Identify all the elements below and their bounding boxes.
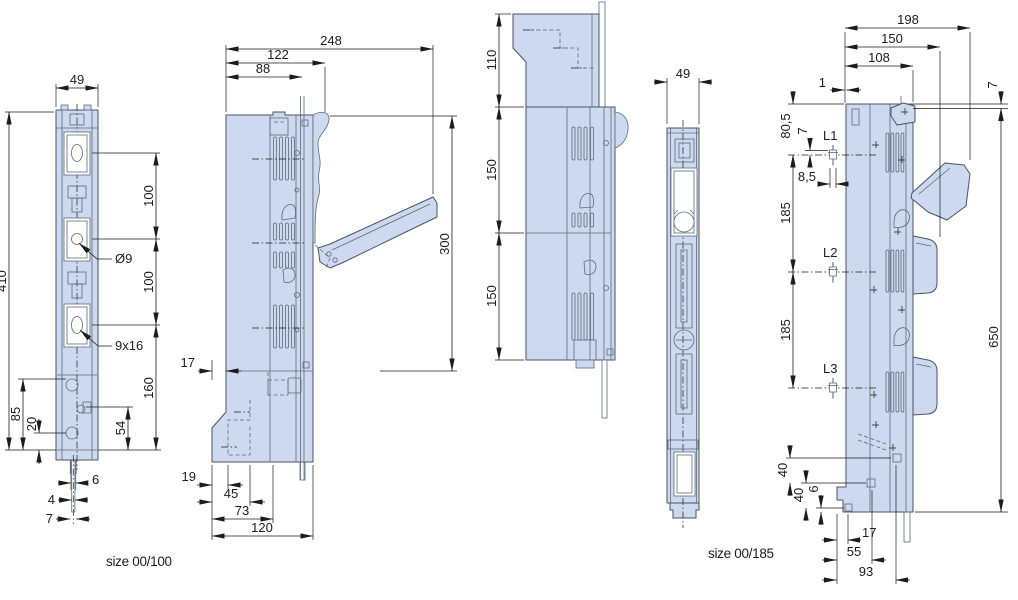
dim-pin-7: 7	[46, 511, 90, 526]
terminal-label-l3: L3	[823, 361, 837, 376]
dim-108: 108	[845, 50, 913, 102]
dim-label: 49	[676, 66, 690, 81]
dim-label: 650	[986, 326, 1001, 348]
dim-label: 185	[778, 202, 793, 224]
technical-drawing-page: 49 410 100 100 160 Ø9	[0, 0, 1018, 600]
top-contact	[891, 103, 915, 125]
dim-label: 93	[859, 564, 873, 579]
terminal-label-l2: L2	[823, 245, 837, 260]
dim-label: 88	[256, 61, 270, 76]
dim-label: 17	[181, 355, 195, 370]
view-side-size-00-100: 248 122 88 300 17 19	[181, 33, 457, 540]
dim-label: 49	[70, 72, 84, 87]
dim-19: 19	[182, 465, 243, 540]
dim-pitch-100-upper: 100	[92, 153, 160, 239]
dim-150-lower: 150	[484, 233, 524, 360]
dim-1: 1	[819, 75, 861, 90]
lever	[911, 163, 970, 220]
dim-label: 120	[251, 520, 273, 535]
dim-label: 248	[320, 33, 342, 48]
dim-label: 17	[862, 525, 876, 540]
view-side-size-00-185: 198 150 108 1 7 80,5	[775, 12, 1008, 584]
dim-label: 6	[806, 485, 821, 492]
dim-label: 150	[881, 31, 903, 46]
dim-pin-4: 4	[48, 492, 88, 507]
part-body	[56, 104, 98, 524]
dim-label: 80,5	[778, 113, 793, 138]
dim-45: 45	[197, 465, 265, 506]
part-body	[667, 120, 699, 528]
dim-label: 1	[819, 75, 826, 90]
bottom-pin-details	[70, 455, 76, 524]
dim-label: 20	[24, 417, 39, 431]
leader-label: Ø9	[115, 251, 132, 266]
dim-label: 100	[141, 185, 156, 207]
dim-label: 45	[224, 486, 238, 501]
dim-73: 73	[212, 465, 273, 523]
dim-label: 185	[778, 319, 793, 341]
caption-size-00-185: size 00/185	[708, 546, 774, 561]
dim-label: 160	[141, 377, 156, 399]
part-body	[212, 96, 437, 480]
dim-label: 150	[484, 159, 499, 181]
dim-width-49: 49	[654, 66, 712, 124]
terminal-label-l1: L1	[823, 128, 837, 143]
dim-label: 19	[182, 469, 196, 484]
leader-label: 9x16	[115, 338, 143, 353]
dim-label: 40	[791, 488, 806, 502]
dim-label: 4	[48, 492, 55, 507]
dim-label: 410	[0, 270, 9, 292]
dim-150-upper: 150	[484, 107, 524, 233]
dim-label: 8,5	[798, 169, 816, 184]
dim-width-49: 49	[56, 72, 98, 107]
view-front-size-00-185: 49	[654, 66, 712, 528]
dim-label: 6	[92, 472, 99, 487]
dim-label: 7	[985, 81, 1000, 88]
dim-label: 54	[113, 421, 128, 435]
part-body	[513, 2, 628, 418]
side-hook	[615, 112, 628, 148]
dim-185-lower: 185	[778, 272, 793, 388]
dim-label: 198	[897, 12, 919, 27]
dim-label: 40	[775, 463, 790, 477]
dim-label: 150	[484, 285, 499, 307]
fuse-switch-dimensional-drawing: 49 410 100 100 160 Ø9	[0, 0, 1018, 600]
caption-size-00-100: size 00/100	[106, 554, 172, 569]
dim-label: 110	[484, 50, 499, 71]
dim-label: 100	[141, 271, 156, 293]
part-body	[788, 96, 970, 542]
view-side-size-00-185-base: 110 150 150	[484, 2, 628, 418]
dim-label: 7	[795, 127, 810, 134]
dim-label: 55	[847, 544, 861, 559]
busbar-section	[599, 2, 605, 110]
dim-185-upper: 185	[778, 155, 793, 272]
lever	[315, 197, 437, 268]
dim-8-5: 8,5	[798, 168, 848, 188]
dim-pin-6: 6	[58, 472, 99, 487]
dim-label: 85	[8, 407, 23, 421]
dim-120: 120	[212, 465, 313, 540]
bottom-blade	[904, 512, 910, 542]
dim-height-410: 410	[0, 112, 56, 450]
dim-7-top: 7	[913, 81, 1008, 122]
dim-label: 7	[46, 511, 53, 526]
dim-label: 122	[267, 47, 289, 62]
dim-label: 73	[235, 503, 249, 518]
view-front-size-00-100: 49 410 100 100 160 Ø9	[0, 72, 161, 526]
dim-122: 122	[226, 47, 325, 112]
dim-label: 108	[868, 50, 890, 65]
dim-label: 300	[437, 233, 452, 255]
